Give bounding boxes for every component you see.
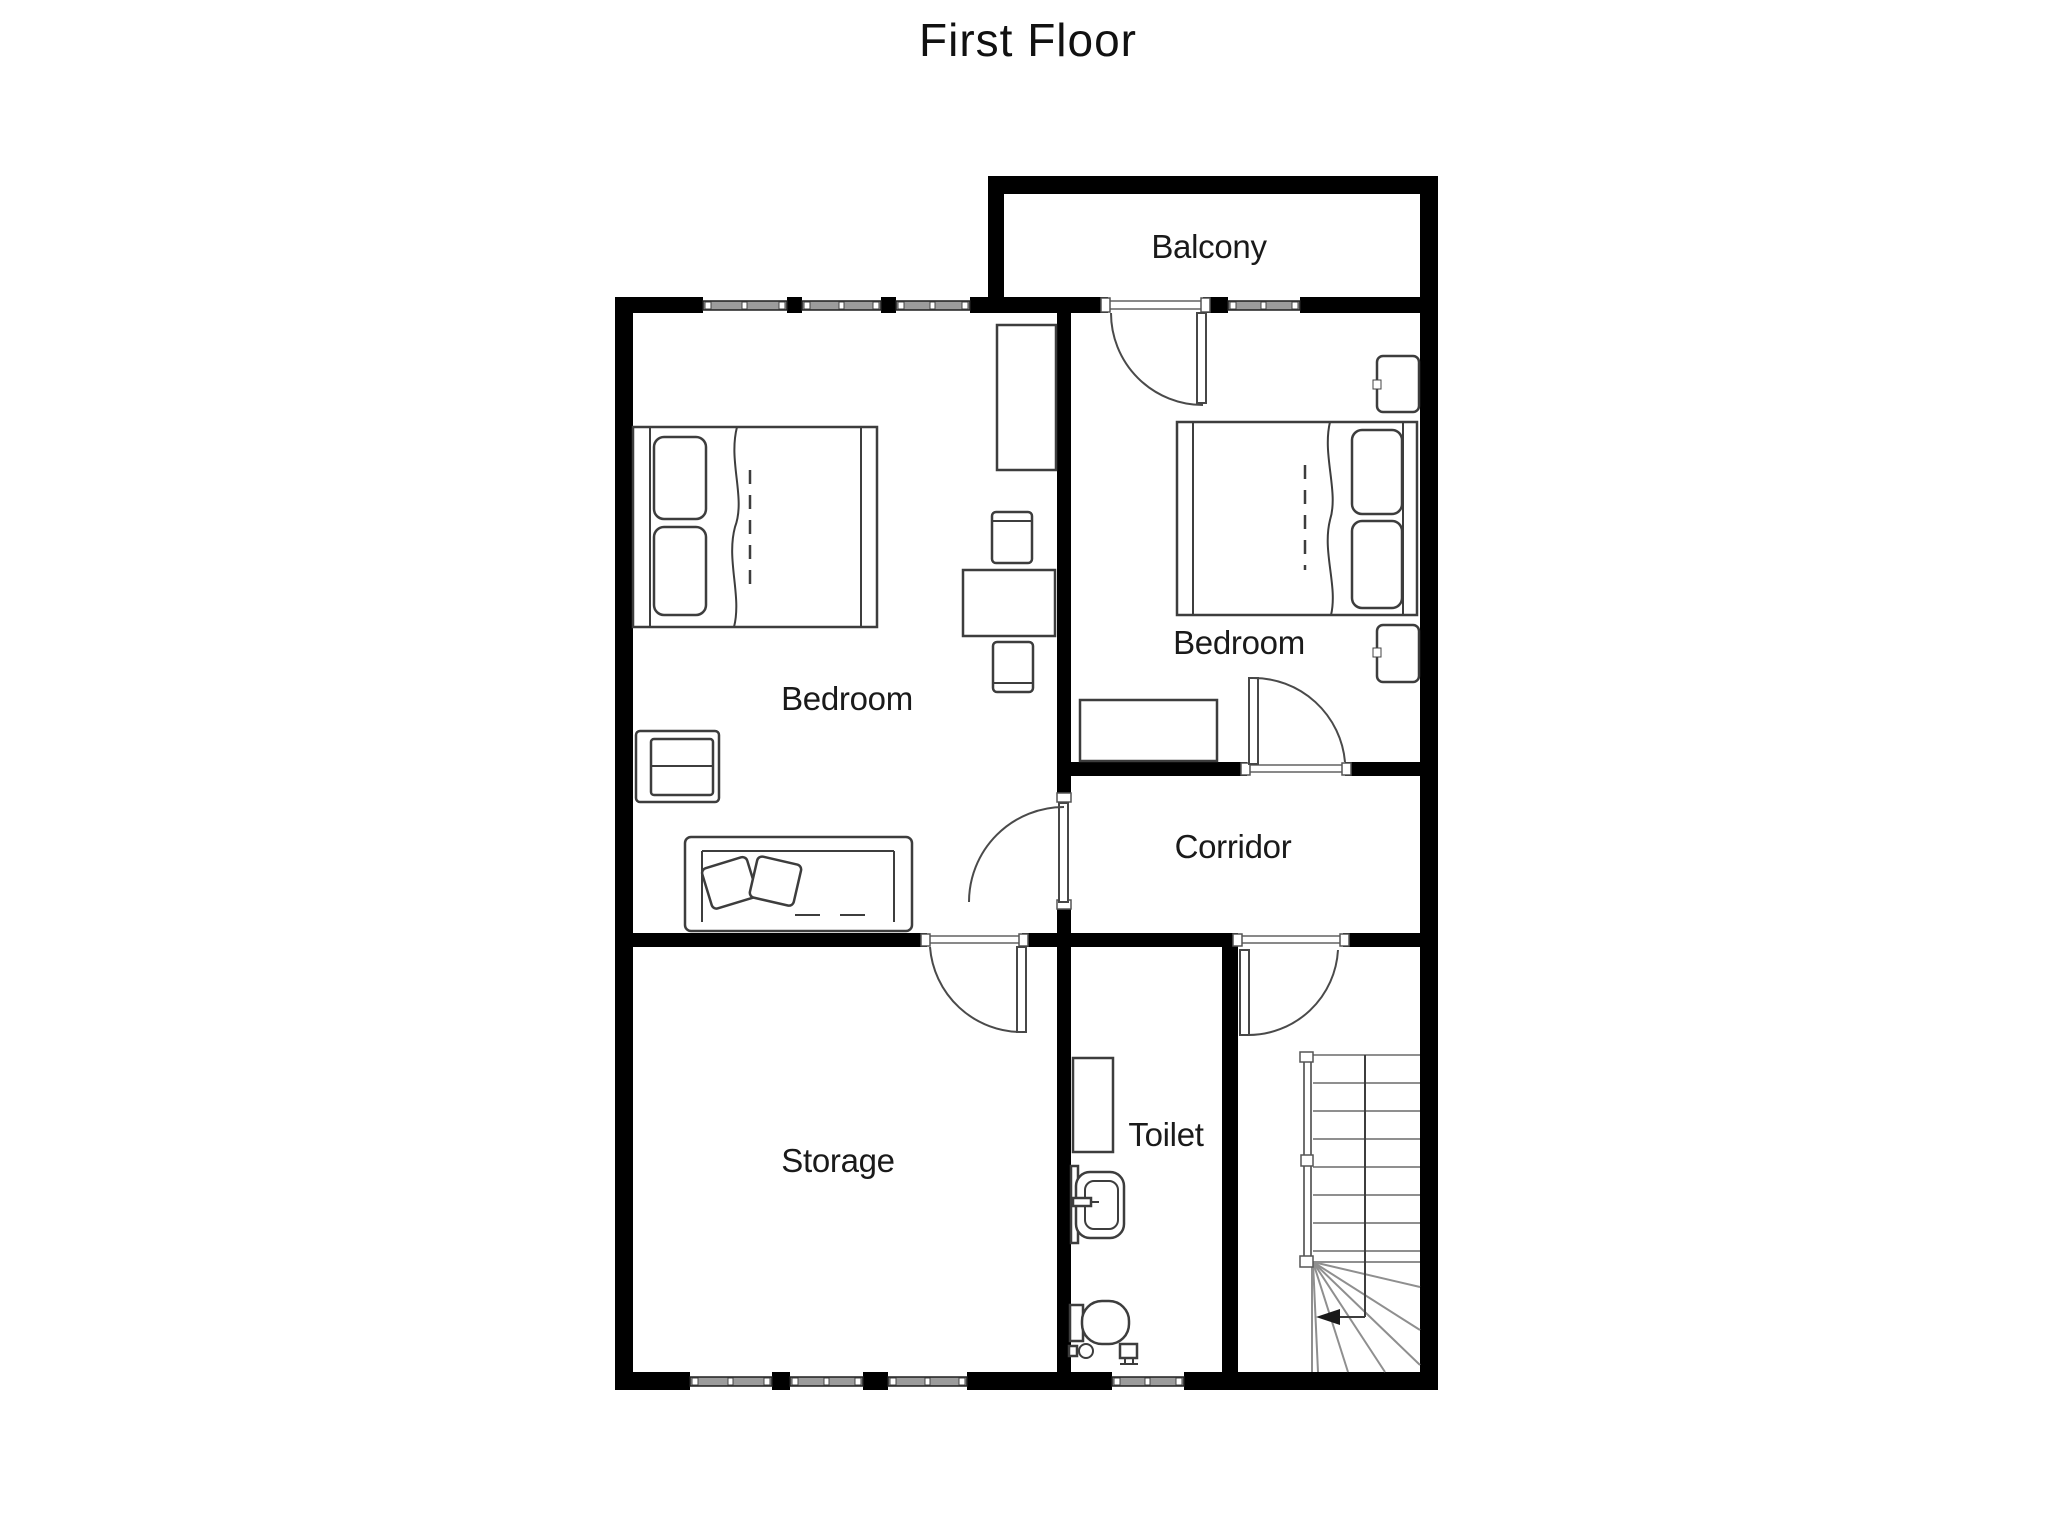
window-icon: [1228, 297, 1300, 313]
wall-balcony-top: [988, 176, 1438, 194]
room-label-bedroom-right: Bedroom: [1173, 624, 1305, 661]
window-icon: [802, 297, 881, 313]
floor-plan-canvas: First Floor: [0, 0, 2048, 1536]
sink-icon: [1071, 1166, 1124, 1243]
double-bed-icon: [1177, 422, 1417, 615]
window-icon: [690, 1372, 772, 1390]
toilet-bowl-icon: [1070, 1301, 1129, 1344]
window-icon: [888, 1372, 967, 1390]
room-label-toilet: Toilet: [1128, 1116, 1203, 1153]
wall-outer-left: [615, 297, 633, 1390]
wall-toilet-east: [1222, 947, 1238, 1372]
door-storage-icon: [921, 933, 1028, 1032]
door-stairs-icon: [1233, 933, 1349, 1035]
window-icon: [1112, 1372, 1184, 1390]
toilet-paper-icon: [1069, 1344, 1093, 1358]
room-label-balcony: Balcony: [1151, 228, 1267, 265]
door-balcony-icon: [1101, 297, 1210, 405]
room-label-storage: Storage: [781, 1142, 894, 1179]
window-icon: [790, 1372, 863, 1390]
handrail-icon: [1300, 1052, 1313, 1267]
wall-balcony-left: [988, 176, 1004, 313]
armchair-icon: [636, 731, 719, 802]
window-icon: [703, 297, 787, 313]
desk-icon: [963, 570, 1055, 636]
staircase-icon: [1300, 1052, 1420, 1372]
nightstand-icon: [1373, 356, 1419, 412]
furniture-toilet: [1069, 1058, 1138, 1364]
window-icon: [896, 297, 970, 313]
floor-drain-icon: [1120, 1344, 1138, 1364]
door-bedroom-right-icon: [1241, 678, 1351, 776]
dresser-icon: [1080, 700, 1217, 761]
doors: [921, 297, 1351, 1035]
wardrobe-icon: [997, 325, 1056, 470]
chair-icon: [992, 512, 1032, 563]
stairs-direction-arrow-icon: [1316, 1055, 1365, 1325]
nightstand-icon: [1373, 625, 1419, 682]
sofa-icon: [685, 837, 912, 931]
double-bed-icon: [633, 427, 877, 627]
room-label-corridor: Corridor: [1175, 828, 1292, 865]
page-title: First Floor: [919, 14, 1137, 66]
door-bedroom-left-icon: [969, 793, 1071, 909]
floor-plan-page: First Floor: [0, 0, 2048, 1536]
chair-icon: [993, 642, 1033, 692]
room-label-bedroom-left: Bedroom: [781, 680, 913, 717]
wall-outer-right: [1420, 176, 1438, 1390]
bathroom-cabinet-icon: [1073, 1058, 1113, 1152]
